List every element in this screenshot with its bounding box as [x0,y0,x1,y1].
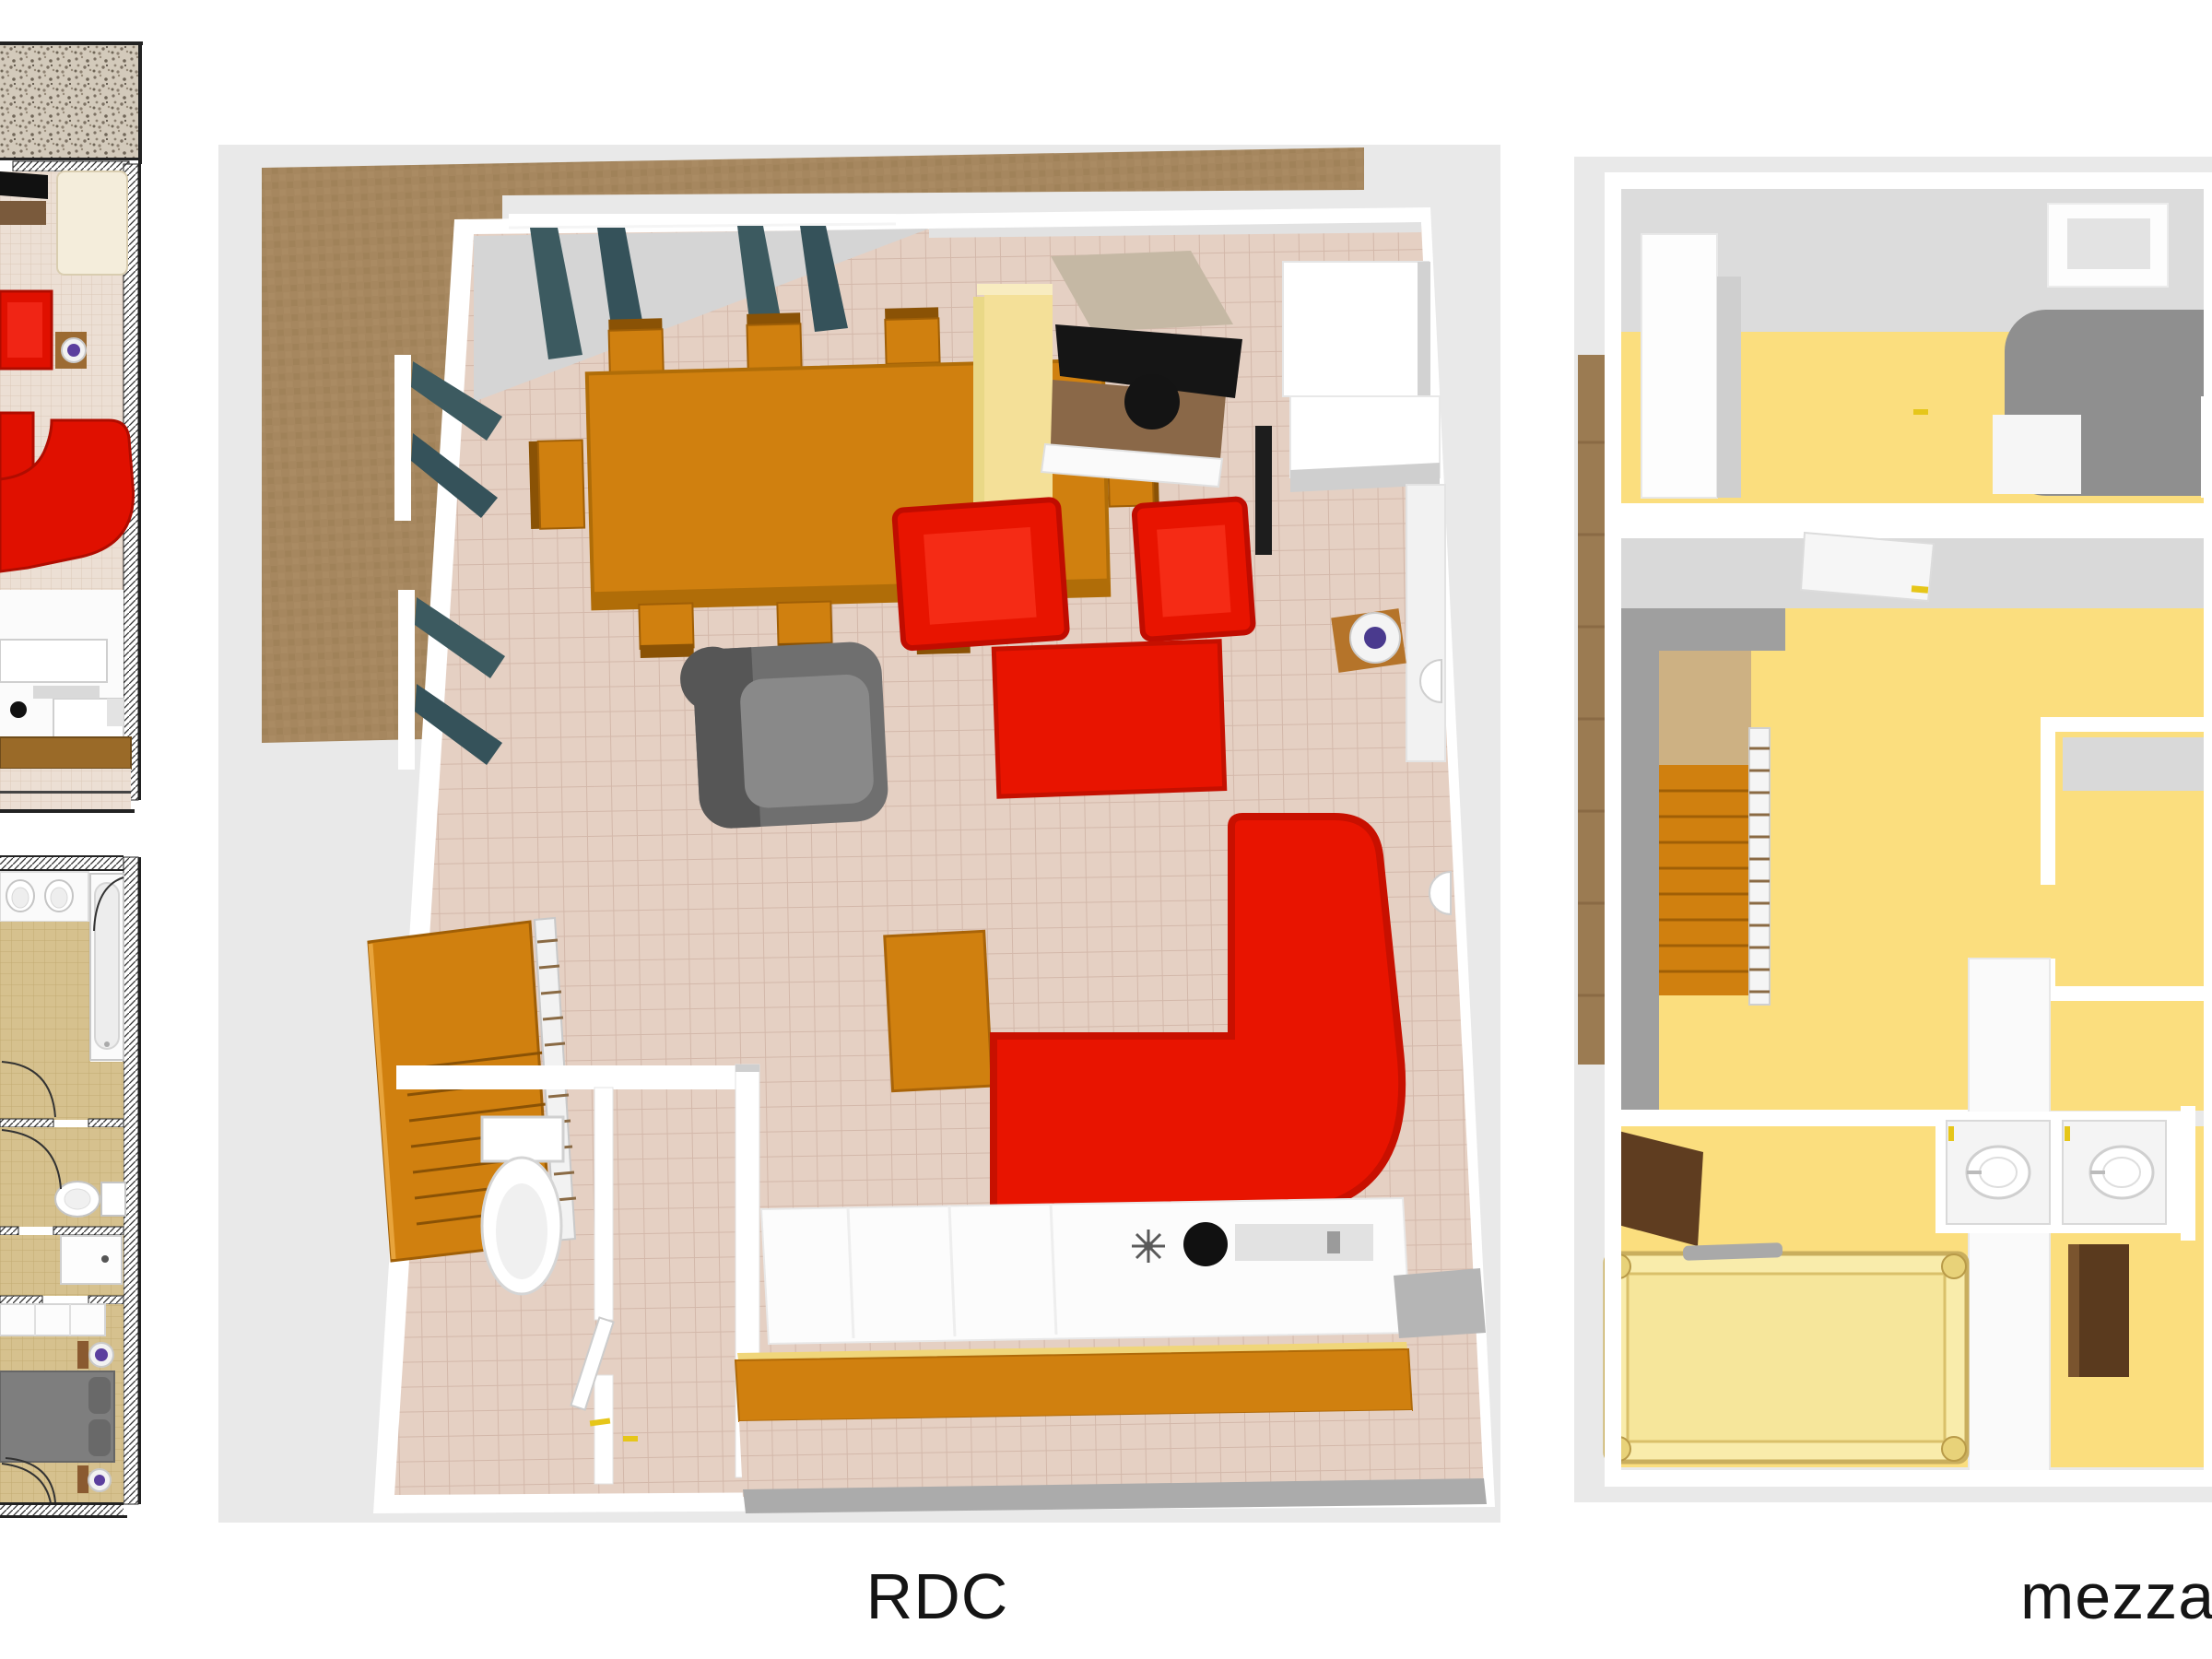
door-handle-mark [2065,1126,2070,1141]
rdc-kitchen-counter [761,1198,1410,1344]
nightstand-lamp [77,1341,113,1369]
rdc-globe-table [1331,608,1406,673]
door-handle-mark [1913,409,1928,415]
mezz-lower-divider [1606,1110,1974,1128]
thumbA-red-armchair [0,291,52,369]
thumbB-wall-right [124,857,141,1504]
thumbB-wall-2 [0,1227,124,1235]
dining-chair [885,307,940,363]
mezz-top-bedroom [1618,186,2212,503]
stair-railing [1749,728,1770,1005]
mezz-wood-strip [1578,355,1607,1065]
toilet-icon [55,1182,125,1217]
mezz-wall-stub [2181,1106,2195,1241]
black-panel [1255,426,1272,555]
rdc-yellow-cabinet [973,284,1053,516]
rdc-gray-armchair [678,638,889,830]
thumbnail-upper-floor-2d [0,855,146,1519]
toilet-icon [1967,1147,2030,1198]
rdc-red-armchair [894,500,1067,649]
dining-chair [747,312,802,369]
thumbA-deck [0,737,131,769]
thumbA-kitchen [0,590,124,737]
kitchen-sink [1183,1222,1228,1266]
toilet-icon [2090,1147,2153,1198]
shower-tray [61,1236,122,1284]
mezz-brown-cabinet [2068,1244,2129,1377]
thumbB-shower-room [0,1235,124,1296]
gray-bed [0,1371,114,1462]
wardrobe [0,1304,105,1335]
thumbB-wall-1 [0,1119,124,1127]
mezz-divider-wall [1606,503,2212,538]
rdc-red-coffee-table [994,641,1224,796]
skylight [2048,204,2168,287]
rdc-window-top [509,214,896,228]
thumbA-terrace-gravel [0,41,143,164]
thumbB-bathroom [0,872,124,1120]
thumbA-deck-tiles [0,769,131,809]
door-handle-mark [1948,1126,1954,1141]
thumbB-wc-room [0,1127,125,1227]
thumbA-wall-top [13,161,129,171]
thumbA-side-table-lamp [55,332,87,369]
thumbB-wall-top [0,855,124,871]
rdc-red-armchair [1134,499,1253,640]
door-handle-mark [623,1436,638,1441]
floor-label-rdc: RDC [794,1559,1080,1633]
dining-chair [639,603,693,657]
thumbB-wall-3 [0,1296,124,1304]
plan-mezzanine [1574,157,2212,1502]
stove-burner-icon [1132,1230,1165,1263]
rdc-orange-end-table [885,931,993,1090]
outdoor-bench [735,1349,1412,1421]
mezz-wc-closets [1935,1112,2181,1233]
bathtub [90,874,124,1060]
thumbB-wall-bottom [0,1502,127,1518]
thumbA-sink [10,701,27,718]
open-door [1801,533,1934,601]
rdc-tv-unit [1041,324,1242,487]
floor-plan-sheet: { "sheet": { "type": "floor-plan-sheet",… [0,0,2212,1659]
dining-chair [608,318,664,374]
thumbnail-ground-floor-2d [0,41,146,829]
plan-rdc [218,145,1500,1523]
thumbA-rug [57,171,127,275]
yellow-double-bed [1606,1242,1967,1462]
floor-label-mezzanine: mezzanine [2020,1559,2212,1633]
thumbB-bedroom [0,1304,124,1510]
dining-chair [529,441,584,529]
toilet-icon [482,1117,563,1294]
